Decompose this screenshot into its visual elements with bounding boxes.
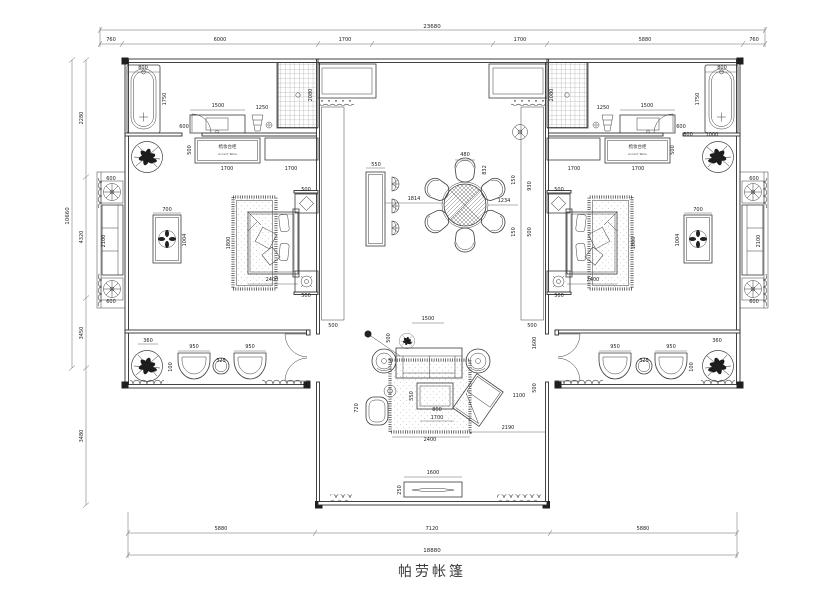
dim-label: 360 [712, 338, 722, 344]
hall-bottom-wall [318, 502, 547, 506]
dim-label: 1800 [226, 237, 232, 250]
dim-label: 930 [527, 181, 533, 191]
dim-label: 1700 [339, 37, 352, 43]
stool-icon [252, 115, 272, 131]
wall-sconce-icon [392, 199, 399, 213]
floor-plan-canvas: 23680 18880 10660 梳妆台柜 Accent Table 梳妆台柜… [0, 0, 837, 592]
dim-label: 720 [354, 403, 360, 413]
dim-label: 1700 [221, 166, 234, 172]
tv-console-icon [404, 482, 462, 497]
dim-label: 1700 [632, 166, 645, 172]
wall-sconce-icon [392, 177, 399, 191]
dim-label: 1500 [212, 103, 225, 109]
fan-side-table-icon [101, 181, 123, 203]
accent-table-label-en: Accent Table [218, 152, 237, 156]
fan-side-table-icon [101, 278, 123, 300]
dim-label: 500 [532, 383, 538, 393]
dim-label: 150 [511, 175, 517, 185]
dim-label: 1004 [675, 234, 681, 247]
drawing-title: 帕劳帐篷 [398, 564, 466, 580]
dim-label: 1234 [498, 198, 511, 204]
dim-label: 700 [693, 207, 703, 213]
top-panel-inner [322, 68, 372, 94]
dim-label: 800 [717, 65, 727, 71]
dim-label: 1600 [532, 337, 538, 350]
curtain-icon [130, 379, 164, 385]
dim-label: 3480 [79, 430, 85, 443]
accent-table-label-cn: 梳妆台柜 [629, 143, 647, 150]
dim-label: 1600 [427, 470, 440, 476]
nightstand-icon [295, 194, 318, 213]
bench-icon [366, 397, 388, 425]
curtain-icon [497, 495, 541, 501]
pillow-icon [279, 243, 290, 261]
curtain-icon [320, 100, 354, 106]
dim-label: 500 [187, 145, 193, 155]
dim-label: 1004 [182, 234, 188, 247]
left-wing [97, 58, 376, 509]
lounge-u-chair-icon [178, 353, 210, 379]
floor-lamp-icon [365, 331, 401, 357]
dim-label: 1814 [408, 196, 421, 202]
dim-label: 150 [511, 227, 517, 237]
dim-label: 360 [143, 338, 153, 344]
left-overall-dim: 10660 [65, 207, 71, 225]
dim-label: 2400 [424, 437, 437, 443]
dim-label: 2400 [587, 277, 600, 283]
dim-label: 500 [527, 323, 537, 329]
dim-label: 550 [371, 162, 381, 168]
floor-plan-drawing: 23680 18880 10660 梳妆台柜 Accent Table 梳妆台柜… [0, 0, 837, 592]
dim-label: 100 [168, 362, 174, 372]
dim-label: 600 [749, 176, 759, 182]
dim-label: 1700 [568, 166, 581, 172]
console-table-icon [366, 172, 385, 246]
dim-label: 1100 [513, 393, 526, 399]
pillow-icon [278, 214, 289, 232]
curtain-icon [330, 495, 352, 501]
dim-label: 325 [216, 358, 226, 364]
dim-label: 500 [301, 187, 311, 193]
dim-label: 7120 [426, 526, 439, 532]
dim-label: 5880 [637, 526, 650, 532]
dim-label: 600 [179, 124, 189, 130]
bathtub-icon [127, 65, 160, 133]
dim-label: 500 [670, 145, 676, 155]
nightstand-icon [295, 271, 318, 292]
accent-table-label-en: Accent Table [628, 152, 647, 156]
washroom-side-wall [307, 330, 311, 335]
dim-label: 1700 [514, 37, 527, 43]
door-arc-icon [285, 334, 307, 381]
lounge-u-chair-icon [234, 353, 266, 379]
dim-label: 760 [106, 37, 116, 43]
top-panel [318, 64, 376, 98]
dim-label: 950 [666, 344, 676, 350]
dim-label: 950 [610, 344, 620, 350]
dim-label: 800 [138, 65, 148, 71]
bath-wall [125, 133, 182, 136]
dim-label: 1500 [422, 316, 435, 322]
dim-label: 600 [749, 299, 759, 305]
dim-label: 325 [639, 358, 649, 364]
plant-icon [132, 351, 163, 382]
dim-label: 250 [397, 485, 403, 495]
curtain-icon [98, 178, 104, 208]
bath-wall [202, 133, 318, 136]
curtain-icon [98, 274, 104, 306]
dim-label: 6000 [214, 37, 227, 43]
dresser-icon [190, 115, 245, 133]
dim-label: 2190 [502, 425, 515, 431]
dimension-lines [69, 27, 767, 558]
dim-label: 760 [749, 37, 759, 43]
dim-label: 2100 [101, 235, 107, 248]
bed-group [233, 197, 299, 289]
dim-label: 1500 [641, 103, 654, 109]
curtain-icon [262, 379, 302, 385]
washroom-wall [125, 330, 310, 333]
dim-label: 4320 [79, 231, 85, 244]
dim-label: 950 [245, 344, 255, 350]
dim-label: 2080 [308, 89, 314, 102]
hall-top-wall [318, 59, 547, 63]
dim-label: 1750 [695, 93, 701, 106]
dim-label: 3450 [79, 327, 85, 340]
dim-label: 500 [554, 187, 564, 193]
dim-label: 832 [482, 165, 488, 175]
dim-label: 2400 [266, 277, 279, 283]
ceiling-fan-icon [513, 125, 528, 140]
bottom-overall-dim: 18880 [423, 548, 441, 554]
accent-table-label-cn: 梳妆台柜 [219, 143, 237, 150]
dim-label: 500 [527, 227, 533, 237]
dim-label: 600 [676, 124, 686, 130]
dim-label: 1750 [162, 93, 168, 106]
dim-label: 500 [328, 323, 338, 329]
dim-label: 5880 [639, 37, 652, 43]
dim-label: 5880 [215, 526, 228, 532]
dim-label: 1700 [285, 166, 298, 172]
dining-chair-icon [455, 228, 475, 252]
dim-label: 550 [409, 391, 415, 401]
dim-label: 2100 [756, 235, 762, 248]
wing-top-wall [125, 59, 318, 63]
wing-bottom-wall [125, 385, 310, 389]
top-overall-dim: 23680 [423, 24, 441, 30]
dim-label: 950 [189, 344, 199, 350]
dim-label: 500 [554, 293, 564, 299]
dim-label: 1250 [256, 105, 269, 111]
dim-label: 1000 [706, 132, 719, 138]
dim-label: 800 [683, 132, 693, 138]
plant-icon [399, 333, 415, 349]
dim-label: 500 [301, 293, 311, 299]
wall-sconce-icon [392, 221, 399, 235]
plant-icon [132, 142, 163, 173]
dim-label: 480 [460, 152, 470, 158]
dim-label: 1250 [597, 105, 610, 111]
game-table-icon [153, 215, 181, 263]
dim-label: 700 [162, 207, 172, 213]
dim-label: 500 [386, 333, 392, 343]
dim-label: 800 [432, 407, 442, 413]
dim-label: 100 [689, 362, 695, 372]
dim-label: 2280 [79, 112, 85, 125]
dim-label: 600 [106, 176, 116, 182]
dim-label: 1700 [431, 415, 444, 421]
hall-side-wall [317, 382, 320, 505]
lattice-screen [322, 107, 345, 320]
right-wing [489, 58, 768, 509]
dining-chair-icon [455, 158, 475, 182]
accent-cabinet [195, 138, 260, 163]
dim-label: 2080 [549, 89, 555, 102]
dim-label: 1800 [631, 237, 637, 250]
dim-label: 600 [106, 299, 116, 305]
wardrobe-stripes [265, 138, 318, 160]
dimension-labels: 7606000170017005880760588071205880228043… [79, 37, 762, 532]
